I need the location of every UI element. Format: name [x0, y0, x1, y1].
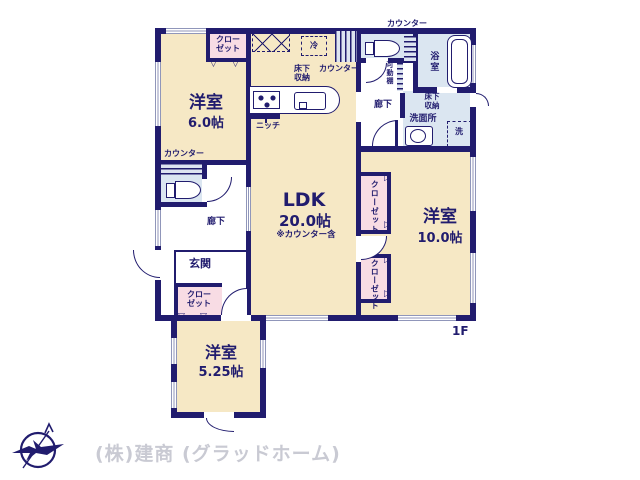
hall-left-name: 廊下: [207, 217, 225, 227]
bedroom3-door-arc: [221, 288, 247, 315]
window-bedroom3-left-b: [171, 382, 177, 408]
window-bedroom2-right-b: [470, 253, 476, 303]
window-bedroom2-right-a: [470, 157, 476, 211]
entrance-name: 玄関: [189, 258, 211, 271]
toilet-left-counter: [161, 163, 202, 175]
toilet-top-door-arc: [366, 63, 387, 83]
underfloor-line2: 収納: [294, 73, 310, 82]
toilet-top-bowl: [374, 40, 400, 57]
closet-label-line1: クロー: [216, 35, 240, 44]
opening-bedroom3-entry: [221, 315, 251, 321]
ldk-counter: [335, 31, 357, 62]
closet-hook-icon: ▽: [210, 60, 217, 69]
floor-indicator: 1F: [452, 325, 469, 339]
ldk-size: 20.0帖: [279, 213, 331, 230]
closet-hook-icon: ▽: [232, 60, 239, 69]
closet-hook-icon: ▷: [384, 221, 391, 230]
company-name: (株)建商 (グラッドホーム): [95, 444, 341, 466]
fridge-label: 冷: [310, 41, 318, 50]
sliding-door-hall-ldk: [246, 187, 251, 231]
closet-entrance-label: クロー ゼット: [187, 290, 211, 308]
window-bedroom3-left-a: [171, 338, 177, 364]
closet-bedroom2-a-label: クローゼット: [370, 180, 379, 234]
bath-name: 浴室: [428, 51, 438, 73]
hall-top-name: 廊下: [374, 100, 392, 110]
hanging-cupboard: [252, 33, 290, 52]
closet-bedroom1-label: クロー ゼット: [216, 35, 240, 53]
window-bedroom1-left: [155, 62, 161, 126]
underfloor-storage-washroom-label: 床下 収納: [425, 93, 440, 110]
entrance-step-line-v: [174, 250, 176, 288]
window-hall-left: [155, 210, 161, 246]
toilet-left-tank: [166, 183, 175, 198]
window-bedroom3-right: [260, 340, 266, 368]
underfloor-line2: 収納: [425, 101, 440, 110]
window-bedroom2-bottom: [398, 315, 456, 321]
toilet-left-bowl: [175, 181, 201, 199]
closet-hook-icon: ▷: [384, 290, 391, 299]
kitchen-faucet: [299, 102, 307, 109]
washer-label: 洗: [455, 127, 463, 136]
bedroom1-size: 6.0帖: [188, 117, 224, 132]
ldk-note: ※カウンター含: [276, 231, 335, 241]
toilet-top-counter: [404, 36, 416, 62]
closet-label-line2: ゼット: [216, 44, 240, 53]
bedroom3-south-door-arc: [206, 418, 234, 432]
front-door-arc: [133, 250, 160, 278]
closet-bedroom2-b-label: クローゼット: [370, 259, 379, 310]
bedroom1-name: 洋室: [189, 94, 223, 114]
counter-label-top: カウンター: [387, 19, 427, 28]
underfloor-storage-kitchen-label: 床下 収納: [294, 64, 310, 82]
compass-north-icon: [9, 419, 67, 477]
closet-hook-icon: ▽: [200, 313, 207, 322]
wall-toilet-left-bottom: [158, 202, 207, 207]
counter-label-ldk: カウンター: [319, 64, 359, 73]
ldk-name: LDK: [283, 190, 326, 212]
niche-label: ニッチ: [256, 121, 280, 130]
window-bedroom1-top: [166, 28, 206, 34]
wall-ldk-left: [246, 31, 251, 321]
closet-label-line1: クロー: [187, 290, 211, 299]
bedroom3-size: 5.25帖: [198, 366, 243, 381]
wall-ldk-right: [356, 31, 361, 321]
toilet-left-door-arc: [207, 177, 232, 202]
movable-shelf: [397, 63, 403, 91]
closet-label-line2: ゼット: [187, 299, 211, 308]
wall-washroom-left: [400, 93, 405, 118]
toilet-top-tank: [365, 42, 374, 55]
closet-hook-icon: ▽: [178, 313, 185, 322]
counter-label-left: カウンター: [164, 149, 204, 158]
floor-plan: ▽ ▽ ▽ ▽ ▷ ▷ ▷ ▷ カウンター クロー ゼット 冷 カウンター 床下…: [0, 0, 640, 480]
bedroom3-name: 洋室: [205, 344, 237, 362]
bedroom2-size: 10.0帖: [417, 232, 462, 247]
underfloor-line1: 床下: [294, 64, 310, 73]
washroom-name: 洗面所: [409, 114, 436, 124]
vanity-sink-bowl: [410, 129, 426, 143]
window-ldk-bottom: [266, 315, 328, 321]
washroom-door-leaf: [395, 120, 398, 146]
opening-hall-top: [356, 92, 361, 122]
closet-hook-icon: ▷: [384, 256, 391, 265]
entrance-step-line-h: [174, 250, 246, 252]
bathtub-inner: [451, 39, 468, 84]
movable-shelf-label: 可動棚: [386, 61, 394, 85]
bedroom2-name: 洋室: [423, 208, 457, 228]
stove: [253, 91, 280, 109]
back-door-arc: [476, 93, 489, 106]
closet-hook-icon: ▷: [384, 174, 391, 183]
